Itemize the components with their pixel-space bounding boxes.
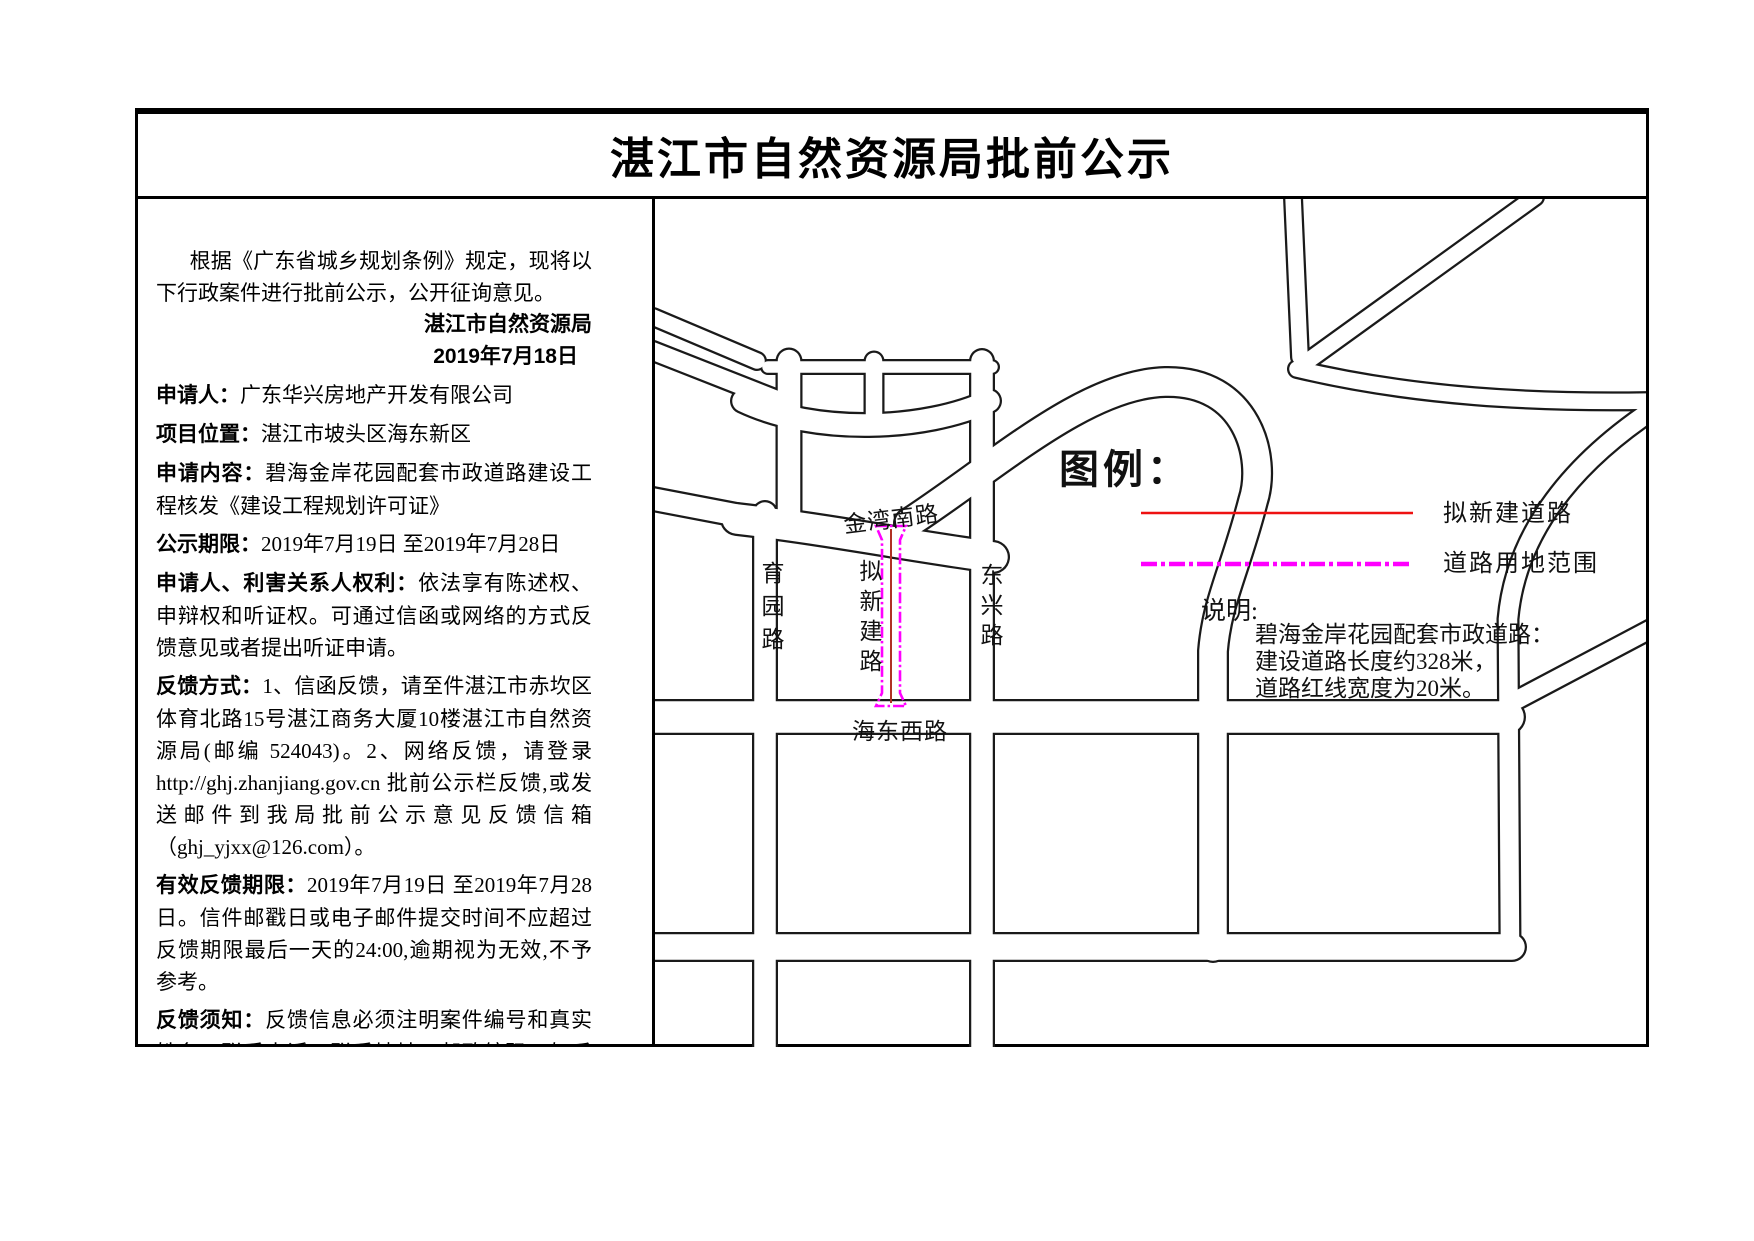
field-feedback-notes: 反馈须知：反馈信息必须注明案件编号和真实姓名、联系电话、联系地址、邮政编码，如反… — [156, 1004, 592, 1047]
field-application-content: 申请内容：碧海金岸花园配套市政道路建设工程核发《建设工程规划许可证》 — [156, 457, 592, 522]
title-row: 湛江市自然资源局批前公示 — [138, 114, 1646, 199]
field-feedback-deadline: 有效反馈期限：2019年7月19日 至2019年7月28日。信件邮戳日或电子邮件… — [156, 869, 592, 998]
road-label-yuyuan: 育园路 — [753, 561, 787, 660]
field-label: 反馈方式： — [156, 675, 262, 698]
page-title: 湛江市自然资源局批前公示 — [610, 123, 1174, 187]
legend-item-land-boundary: 道路用地范围 — [1443, 543, 1599, 578]
intro-paragraph: 根据《广东省城乡规划条例》规定，现将以下行政案件进行批前公示，公开征询意见。 — [156, 245, 592, 309]
map-note-line: 碧海金岸花园配套市政道路： — [1255, 621, 1554, 648]
field-value: 2019年7月19日 至2019年7月28日 — [261, 532, 560, 556]
field-label: 有效反馈期限： — [156, 874, 307, 897]
road-label-dongxing: 东兴路 — [972, 563, 1006, 653]
road-label-proposed: 拟新建路 — [851, 559, 885, 679]
field-label: 反馈须知： — [156, 1009, 265, 1032]
date-line: 2019年7月18日 — [156, 341, 592, 373]
field-rights: 申请人、利害关系人权利：依法享有陈述权、申辩权和听证权。可通过信函或网络的方式反… — [156, 567, 592, 664]
field-value: 广东华兴房地产开发有限公司 — [240, 383, 513, 407]
map-note-text: 碧海金岸花园配套市政道路： 建设道路长度约328米， 道路红线宽度为20米。 — [1255, 621, 1554, 702]
field-value: 湛江市坡头区海东新区 — [261, 422, 471, 446]
signature-line: 湛江市自然资源局 — [156, 309, 592, 341]
field-label: 申请人： — [156, 384, 240, 407]
notice-table: 湛江市自然资源局批前公示 根据《广东省城乡规划条例》规定，现将以下行政案件进行批… — [135, 108, 1649, 1047]
field-label: 申请内容： — [156, 462, 265, 485]
field-applicant: 申请人：广东华兴房地产开发有限公司 — [156, 379, 592, 412]
legend-item-new-road: 拟新建道路 — [1443, 493, 1573, 528]
field-publicity-period: 公示期限：2019年7月19日 至2019年7月28日 — [156, 528, 592, 561]
field-label: 项目位置： — [156, 423, 261, 446]
map-note-line: 建设道路长度约328米， — [1255, 648, 1554, 675]
map-note-label: 说明: — [1201, 591, 1258, 627]
page: 湛江市自然资源局批前公示 根据《广东省城乡规划条例》规定，现将以下行政案件进行批… — [0, 0, 1754, 1241]
site-map-panel: 图例： 拟新建道路 道路用地范围 说明: 碧海金岸花园配套市政道路： 建设道路长… — [655, 199, 1646, 1047]
field-feedback-method: 反馈方式：1、信函反馈，请至件湛江市赤坎区体育北路15号湛江商务大厦10楼湛江市… — [156, 670, 592, 863]
field-location: 项目位置：湛江市坡头区海东新区 — [156, 418, 592, 451]
legend-samples — [1141, 513, 1413, 564]
field-label: 申请人、利害关系人权利： — [156, 572, 418, 595]
field-value: 1、信函反馈，请至件湛江市赤坎区体育北路15号湛江商务大厦10楼湛江市自然资源局… — [156, 674, 592, 859]
notice-text-column: 根据《广东省城乡规划条例》规定，现将以下行政案件进行批前公示，公开征询意见。 湛… — [138, 199, 655, 1047]
road-label-haidong-west: 海东西路 — [852, 712, 948, 746]
field-label: 公示期限： — [156, 533, 261, 556]
map-note-line: 道路红线宽度为20米。 — [1255, 675, 1554, 702]
table-body: 根据《广东省城乡规划条例》规定，现将以下行政案件进行批前公示，公开征询意见。 湛… — [138, 199, 1646, 1047]
legend-title: 图例： — [1059, 437, 1191, 495]
